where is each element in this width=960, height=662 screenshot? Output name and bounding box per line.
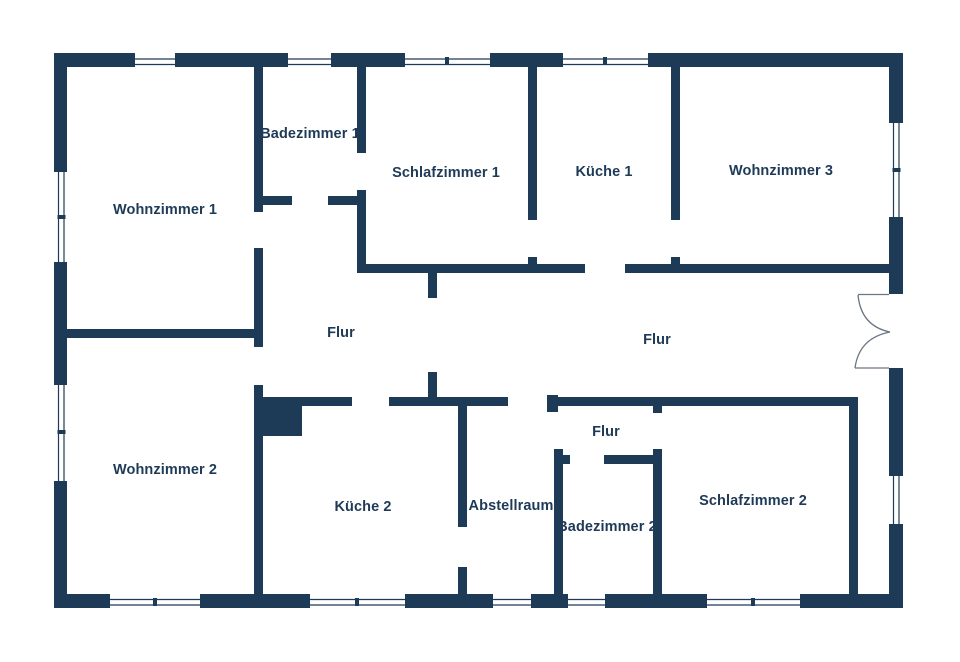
room-label-wohnzimmer-3: Wohnzimmer 3 (729, 163, 833, 179)
window-icon (405, 53, 490, 67)
window-icon (568, 594, 605, 608)
room-label-kueche-1: Küche 1 (575, 164, 632, 180)
window-icon (889, 476, 903, 524)
room-label-flur-left: Flur (327, 325, 355, 341)
shaft-block (259, 403, 302, 436)
window-icon (310, 594, 405, 608)
window-icon (110, 594, 200, 608)
entrance-double-door-icon (855, 295, 890, 369)
window-icon (707, 594, 800, 608)
room-label-abstellraum: Abstellraum (469, 498, 554, 514)
room-label-wohnzimmer-2: Wohnzimmer 2 (113, 462, 217, 478)
room-label-badezimmer-2: Badezimmer 2 (557, 519, 657, 535)
room-label-kueche-2: Küche 2 (334, 499, 391, 515)
window-icon (563, 53, 648, 67)
room-label-schlafzimmer-2: Schlafzimmer 2 (699, 493, 807, 509)
room-label-schlafzimmer-1: Schlafzimmer 1 (392, 165, 500, 181)
room-label-wohnzimmer-1: Wohnzimmer 1 (113, 202, 217, 218)
window-icon (54, 172, 67, 262)
window-icon (54, 385, 67, 481)
window-icon (493, 594, 531, 608)
floor-plan: Wohnzimmer 1 Badezimmer 1 Schlafzimmer 1… (0, 0, 960, 662)
window-icon (889, 123, 903, 217)
room-label-badezimmer-1: Badezimmer 1 (260, 126, 360, 142)
window-icon (288, 53, 331, 67)
floor-plan-drawing (0, 0, 960, 662)
room-label-flur-small: Flur (592, 424, 620, 440)
window-icon (135, 53, 175, 67)
room-label-flur-right: Flur (643, 332, 671, 348)
interior-walls (67, 67, 889, 594)
